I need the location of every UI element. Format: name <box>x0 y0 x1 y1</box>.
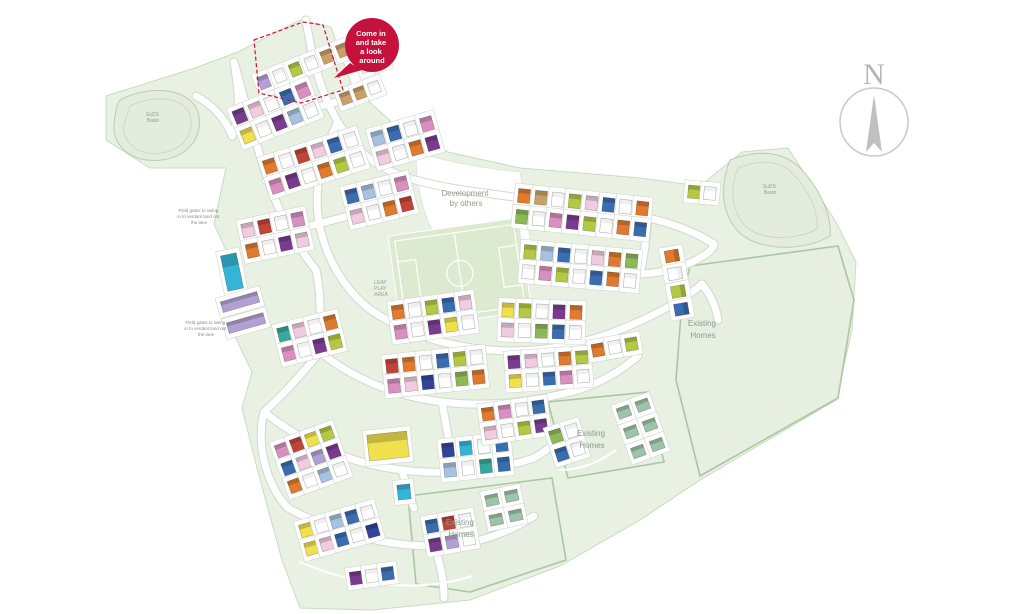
house-plot[interactable] <box>565 320 586 345</box>
house-plot[interactable] <box>699 181 721 206</box>
house-plot[interactable] <box>467 364 489 390</box>
house-plot[interactable] <box>457 309 480 336</box>
svg-text:Come in and take a: Come in and take a look around <box>356 29 389 65</box>
suds-basin-west <box>114 90 200 160</box>
house-plot[interactable] <box>572 364 594 388</box>
house-plot[interactable] <box>493 451 515 477</box>
suds-basin-east <box>724 153 831 247</box>
suds-basin-label-east: SuDS Basin <box>763 184 777 196</box>
site-plan-page: Development by others Existing Homes Exi… <box>0 0 1024 614</box>
house-plot[interactable] <box>619 268 641 294</box>
field-note-south: Field gates to swing in to verdant land … <box>184 320 227 337</box>
house-plot[interactable] <box>376 561 399 587</box>
house-plot[interactable] <box>362 426 414 467</box>
development-site-plan[interactable]: Development by others Existing Homes Exi… <box>0 0 1024 614</box>
leap-play-area-label: LEAP PLAY AREA <box>374 280 389 298</box>
house-plot[interactable] <box>620 331 644 357</box>
compass-north-letter: N <box>863 58 885 91</box>
house-plot[interactable] <box>503 503 528 528</box>
house-plot[interactable] <box>392 478 415 505</box>
house-plot[interactable] <box>629 216 651 242</box>
house-plot[interactable] <box>668 297 695 321</box>
compass-needle-icon <box>866 95 882 152</box>
compass-rose: N <box>840 58 908 156</box>
suds-basin-label-west: SuDS Basin <box>146 112 160 124</box>
